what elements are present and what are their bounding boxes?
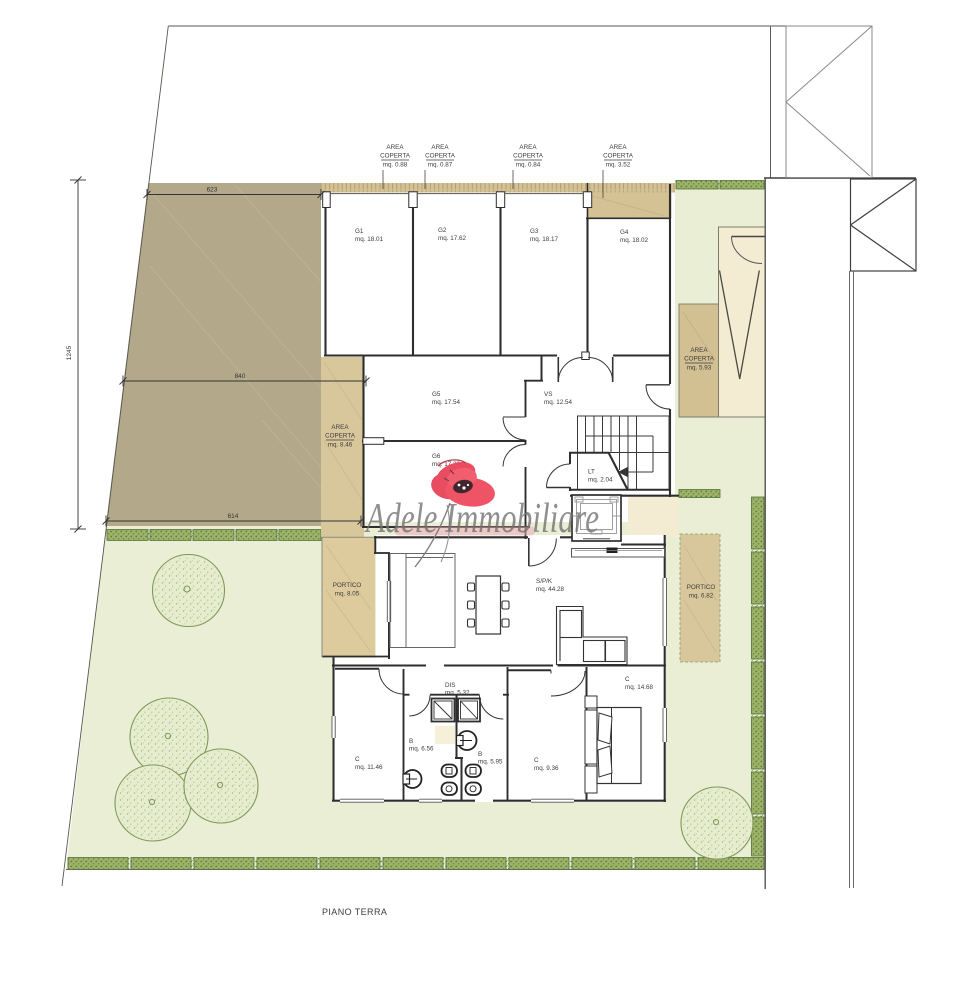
svg-text:mq. 2.04: mq. 2.04 — [588, 477, 613, 484]
svg-text:S/P/K: S/P/K — [536, 578, 553, 585]
svg-text:mq. 17.54: mq. 17.54 — [432, 399, 461, 406]
svg-text:COPERTA: COPERTA — [325, 433, 356, 440]
svg-text:mq. 12.54: mq. 12.54 — [544, 399, 573, 406]
svg-text:mq. 6.56: mq. 6.56 — [409, 746, 434, 753]
svg-text:mq. 0.87: mq. 0.87 — [428, 162, 453, 169]
svg-text:mq. 18.01: mq. 18.01 — [355, 236, 384, 243]
svg-text:mq. 8.46: mq. 8.46 — [328, 442, 353, 449]
svg-text:G6: G6 — [432, 453, 441, 460]
svg-text:mq. 0.84: mq. 0.84 — [516, 162, 541, 169]
svg-text:G1: G1 — [355, 228, 364, 235]
svg-text:mq. 9.36: mq. 9.36 — [534, 765, 559, 772]
svg-text:LT: LT — [588, 469, 595, 476]
svg-text:B: B — [478, 751, 482, 758]
svg-text:DIS: DIS — [445, 682, 456, 689]
svg-text:G4: G4 — [620, 229, 629, 236]
svg-text:PORTICO: PORTICO — [333, 582, 362, 589]
svg-text:614: 614 — [228, 513, 239, 520]
svg-text:mq. 17.62: mq. 17.62 — [438, 235, 467, 242]
svg-text:COPERTA: COPERTA — [603, 153, 634, 160]
svg-text:Adele Immobiliare: Adele Immobiliare — [364, 496, 599, 542]
svg-text:COPERTA: COPERTA — [684, 356, 715, 363]
svg-text:AREA: AREA — [690, 347, 708, 354]
svg-text:C: C — [625, 676, 630, 683]
svg-text:mq. 18.17: mq. 18.17 — [530, 236, 559, 243]
svg-text:mq. 0.88: mq. 0.88 — [383, 162, 408, 169]
svg-text:PIANO TERRA: PIANO TERRA — [322, 907, 387, 917]
svg-text:C: C — [355, 756, 360, 763]
svg-text:AREA: AREA — [331, 424, 349, 431]
svg-text:G5: G5 — [432, 391, 441, 398]
svg-text:VS: VS — [544, 391, 552, 398]
svg-text:AREA: AREA — [431, 144, 449, 151]
svg-text:mq. 3.52: mq. 3.52 — [606, 162, 631, 169]
svg-text:mq. 5.95: mq. 5.95 — [478, 759, 503, 766]
svg-text:623: 623 — [207, 187, 218, 194]
svg-text:1245: 1245 — [66, 345, 73, 360]
svg-text:PORTICO: PORTICO — [687, 584, 716, 591]
svg-text:mq. 14.68: mq. 14.68 — [625, 684, 654, 691]
svg-text:COPERTA: COPERTA — [380, 153, 411, 160]
svg-text:mq. 18.02: mq. 18.02 — [620, 237, 649, 244]
svg-text:COPERTA: COPERTA — [513, 153, 544, 160]
svg-text:mq. 6.82: mq. 6.82 — [689, 593, 714, 600]
svg-text:G2: G2 — [438, 227, 447, 234]
svg-text:840: 840 — [235, 373, 246, 380]
svg-text:AREA: AREA — [386, 144, 404, 151]
svg-text:COPERTA: COPERTA — [425, 153, 456, 160]
svg-text:mq. 5.32: mq. 5.32 — [445, 690, 470, 697]
svg-text:mq. 44.28: mq. 44.28 — [536, 586, 565, 593]
svg-text:AREA: AREA — [519, 144, 537, 151]
svg-text:AREA: AREA — [609, 144, 627, 151]
svg-text:C: C — [534, 757, 539, 764]
svg-text:mq. 8.05: mq. 8.05 — [335, 591, 360, 598]
svg-text:mq. 11.46: mq. 11.46 — [355, 764, 383, 771]
svg-text:B: B — [409, 738, 413, 745]
svg-text:mq. 5.93: mq. 5.93 — [687, 365, 712, 372]
svg-text:G3: G3 — [530, 228, 539, 235]
